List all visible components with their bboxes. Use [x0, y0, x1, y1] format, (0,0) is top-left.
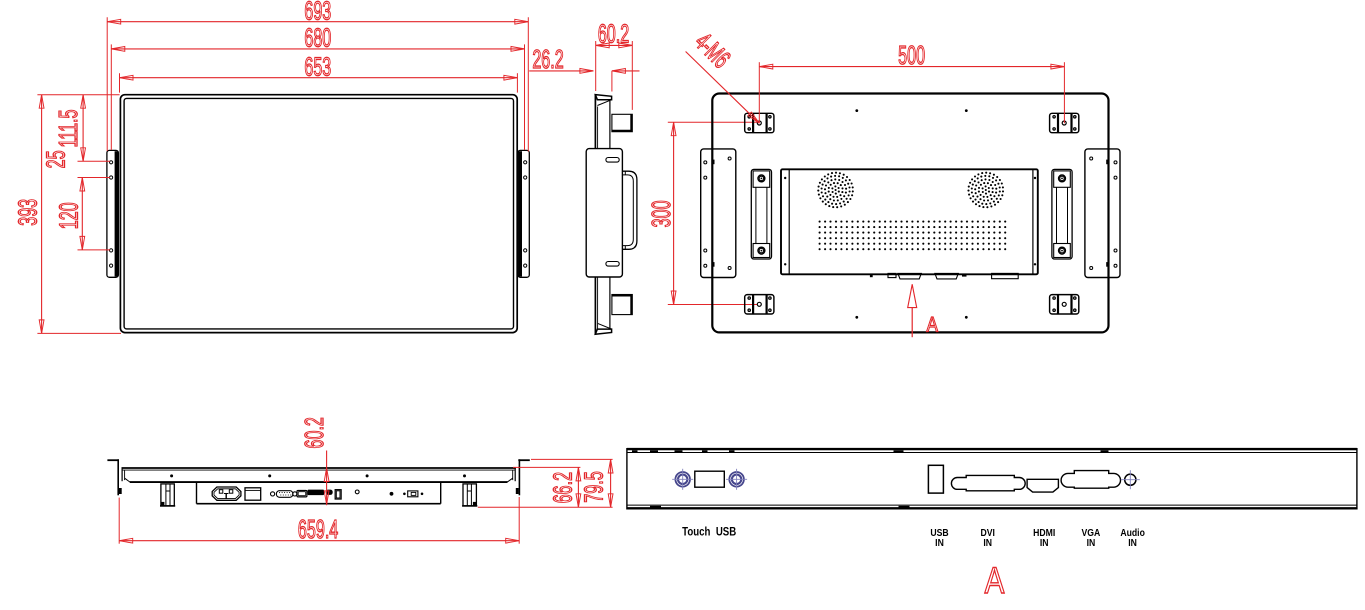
svg-text:A: A [985, 561, 1005, 602]
svg-text:500: 500 [898, 40, 925, 70]
svg-text:120: 120 [53, 202, 83, 229]
svg-text:60.2: 60.2 [598, 19, 629, 49]
svg-text:393: 393 [12, 199, 42, 226]
svg-text:79.5: 79.5 [579, 471, 609, 502]
svg-text:IN: IN [1128, 537, 1137, 549]
svg-text:IN: IN [1040, 537, 1049, 549]
svg-text:Touch USB: Touch USB [682, 525, 736, 538]
svg-text:A: A [927, 314, 939, 337]
svg-text:25: 25 [40, 150, 70, 168]
svg-text:659.4: 659.4 [298, 514, 338, 544]
svg-text:IN: IN [983, 537, 992, 549]
svg-text:680: 680 [304, 22, 331, 52]
svg-text:IN: IN [1087, 537, 1096, 549]
svg-text:60.2: 60.2 [299, 417, 329, 448]
svg-text:IN: IN [935, 537, 944, 549]
svg-text:26.2: 26.2 [532, 44, 563, 74]
svg-text:66.2: 66.2 [548, 472, 578, 503]
svg-text:111.5: 111.5 [53, 110, 83, 148]
svg-text:300: 300 [646, 200, 676, 227]
svg-text:653: 653 [304, 51, 331, 81]
